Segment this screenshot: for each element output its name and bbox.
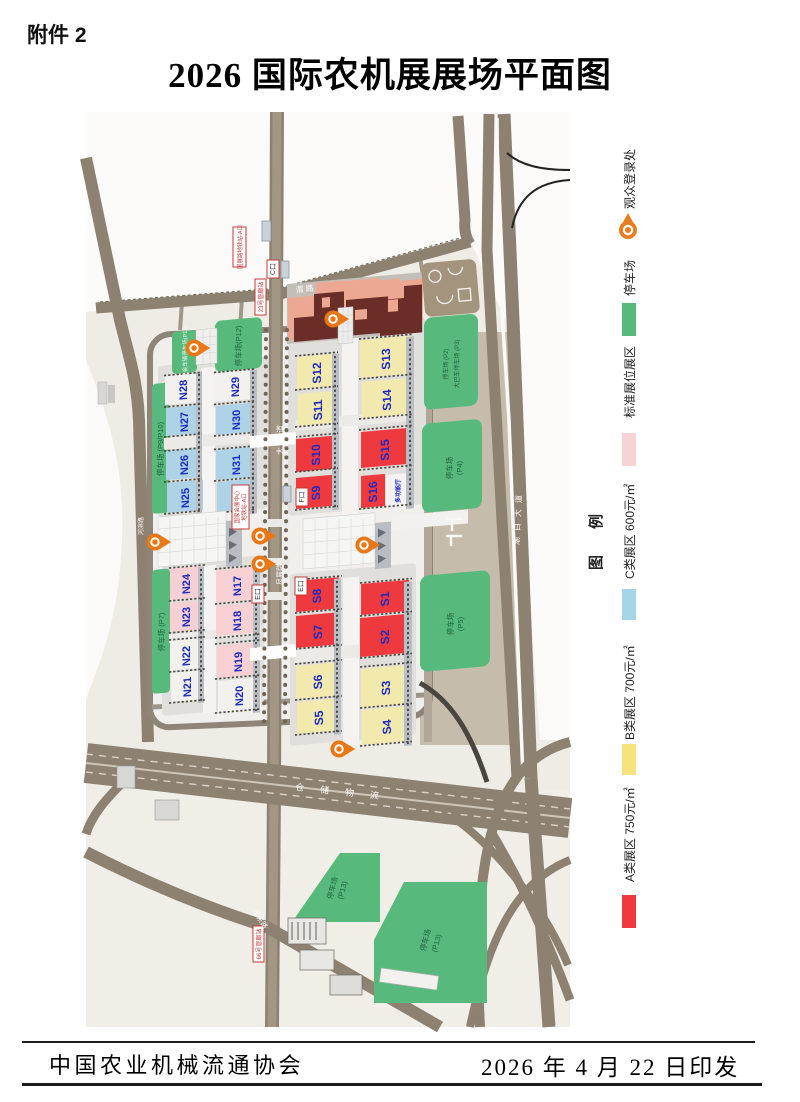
svg-text:F口: F口 — [298, 491, 306, 502]
svg-text:停车场 (P2): 停车场 (P2) — [442, 348, 450, 379]
svg-text:S6: S6 — [311, 674, 325, 690]
svg-text:N26: N26 — [179, 454, 191, 475]
svg-text:N29: N29 — [230, 376, 242, 397]
svg-text:N21: N21 — [182, 676, 194, 697]
svg-text:S12: S12 — [310, 361, 324, 384]
svg-text:C口: C口 — [269, 263, 277, 275]
svg-text:S2: S2 — [378, 629, 392, 645]
svg-text:N19: N19 — [233, 651, 245, 672]
svg-text:23号管廊站: 23号管廊站 — [257, 282, 265, 313]
svg-text:S1: S1 — [378, 591, 392, 607]
svg-text:S15: S15 — [378, 438, 392, 461]
svg-text:N28: N28 — [178, 379, 190, 400]
svg-text:大道: 大道 — [275, 411, 285, 455]
svg-text:S4: S4 — [380, 719, 394, 735]
svg-text:停车场: 停车场 — [445, 612, 455, 635]
svg-text:N24: N24 — [181, 572, 193, 594]
svg-text:E口: E口 — [297, 580, 305, 592]
svg-text:S14: S14 — [380, 388, 394, 411]
svg-text:大巴车停车场 (P3): 大巴车停车场 (P3) — [453, 339, 461, 388]
svg-text:停车场(P12): 停车场(P12) — [233, 325, 243, 366]
svg-text:N30: N30 — [231, 409, 243, 430]
svg-text:S13: S13 — [379, 347, 393, 370]
svg-text:N31: N31 — [231, 454, 243, 475]
svg-text:凤展路: 凤展路 — [275, 564, 284, 585]
svg-text:停车场 (P7): 停车场 (P7) — [156, 612, 166, 651]
svg-text:国家会展中心: 国家会展中心 — [233, 490, 241, 524]
svg-text:N27: N27 — [179, 411, 191, 432]
svg-text:停车场: 停车场 — [444, 456, 454, 479]
svg-text:S7: S7 — [311, 624, 325, 640]
svg-text:停车场 (P9/P10): 停车场 (P9/P10) — [155, 421, 165, 476]
svg-text:S10: S10 — [309, 443, 323, 466]
svg-text:S5: S5 — [312, 710, 326, 726]
svg-text:S11: S11 — [311, 399, 325, 421]
svg-text:S3: S3 — [379, 680, 393, 696]
svg-text:E口: E口 — [254, 588, 262, 600]
svg-text:N20: N20 — [234, 685, 246, 706]
svg-text:N17: N17 — [232, 575, 244, 596]
svg-text:66号管廊站: 66号管廊站 — [255, 929, 263, 960]
svg-text:N23: N23 — [181, 606, 193, 627]
svg-text:河滨路: 河滨路 — [137, 517, 145, 535]
svg-text:S16: S16 — [366, 480, 380, 503]
svg-text:(P4): (P4) — [455, 460, 464, 475]
svg-text:N25: N25 — [180, 487, 192, 508]
svg-text:国展路地铁站-A口: 国展路地铁站-A口 — [236, 225, 244, 269]
svg-text:地铁站-A口: 地铁站-A口 — [240, 493, 248, 521]
svg-text:N22: N22 — [181, 645, 193, 666]
svg-text:S9: S9 — [309, 485, 323, 501]
svg-text:(P5): (P5) — [456, 616, 465, 631]
svg-text:N18: N18 — [232, 610, 244, 631]
svg-text:S8: S8 — [310, 588, 324, 604]
svg-text:多功能厅: 多功能厅 — [394, 479, 402, 504]
